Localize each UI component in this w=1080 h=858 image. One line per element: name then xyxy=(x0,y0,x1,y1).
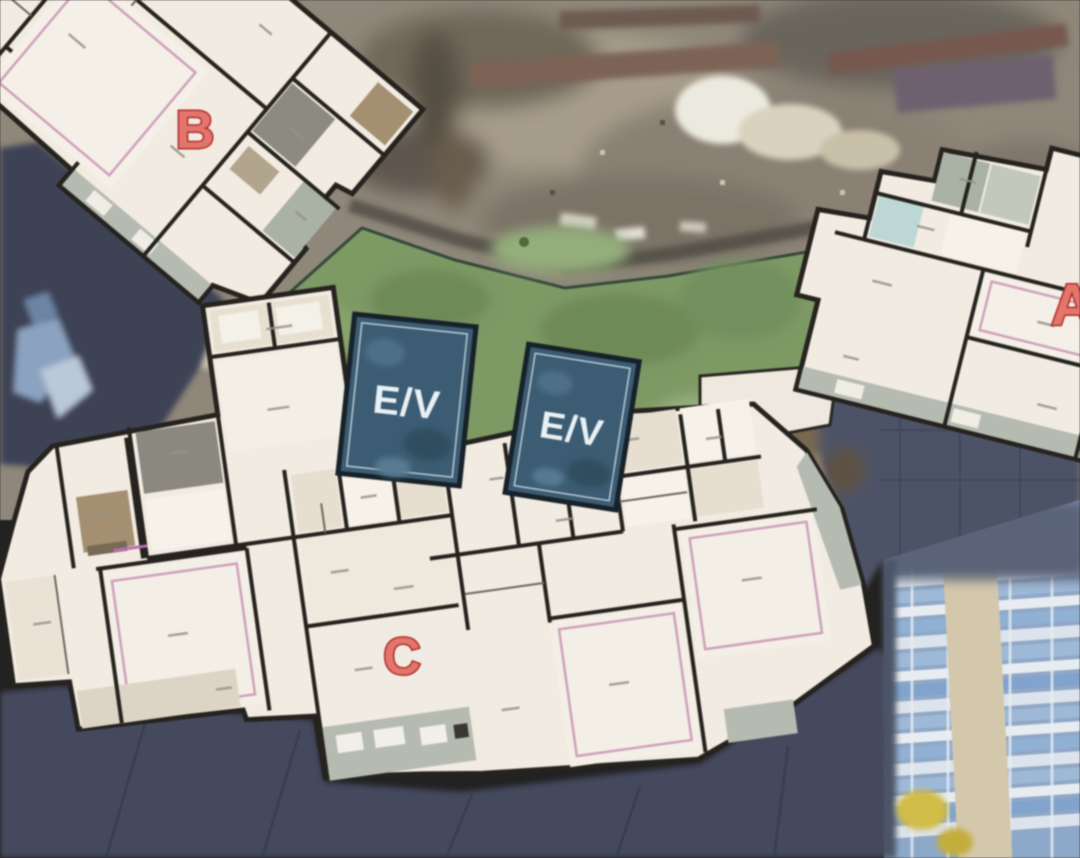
building-c-label: C xyxy=(383,628,421,686)
building-c-elevator-hall xyxy=(135,421,223,494)
elevator-shaft-1: E/V xyxy=(338,314,476,486)
site-plan-overlay-image: B A xyxy=(0,0,1080,858)
building-b-label: B xyxy=(176,100,215,160)
elevator-shaft-2: E/V xyxy=(505,344,639,510)
scene-canvas: B A xyxy=(0,0,1080,858)
elevator-shaft-1-label: E/V xyxy=(371,378,443,429)
yellow-equipment xyxy=(896,790,948,830)
building-a-label: A xyxy=(1051,273,1080,338)
